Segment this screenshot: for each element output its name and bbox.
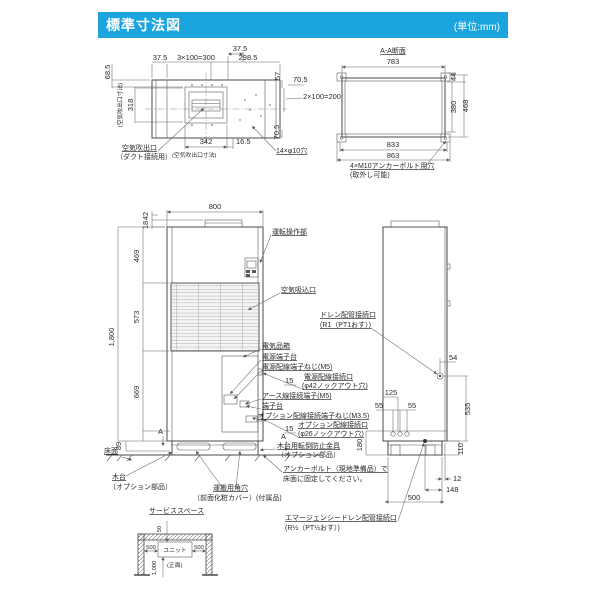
label-carry-holes-2: （前面化粧カバー）(付属品) [193,493,282,502]
dim-125: 125 [385,388,398,397]
dim-37-5-top: 37.5 [233,44,248,53]
dim-18: 18 [141,221,150,229]
dim-54: 54 [449,353,457,362]
dim-573: 573 [132,311,141,324]
label-earth-terminal: アース線接続端子(M5) [262,391,332,400]
dim-55-b: 55 [408,401,416,410]
dim-863: 863 [387,151,400,160]
dim-15-a: 15 [285,376,293,385]
label-floor: 床面 [104,446,118,455]
label-14-holes: 14×φ10穴 [276,146,307,155]
dim-70-5-b: 70.5 [272,125,281,140]
label-anchor-bolt-2: 床面に固定してください。 [283,474,367,483]
dim-55-a: 55 [375,401,383,410]
label-electrical-box: 電気品箱 [262,341,290,350]
dim-833: 833 [387,140,400,149]
label-wood-base: 木台 [112,472,126,481]
label-tip-bracket-2: （オプション部品） [277,450,340,459]
service-space-title: サービススペース [149,506,204,515]
label-emergency-drain-2: (R½（PT½おす）) [285,524,340,532]
label-front-face: (正面) [167,562,183,569]
dim-68-5: 68.5 [103,65,112,80]
dim-800: 800 [209,202,222,211]
label-unit: ユニット [163,547,186,554]
label-power-terminal: 電源端子台 [262,352,297,361]
section-view: A-A断面 783 44 380 468 833 863 4×M10アンカーボル… [337,46,470,179]
dim-669: 669 [132,386,141,399]
label-terminal-block: 端子台 [262,401,283,410]
dim-12: 12 [453,474,461,483]
dim-42: 42 [141,212,150,220]
label-outlet-dim-side: (空気吹出口寸法) [116,83,124,128]
label-power-port-2: (φ42ノックアウト穴) [302,381,368,390]
label-anchor-holes-2: (取外し可能) [350,170,390,179]
emergency-drain-port [423,439,427,443]
dim-535: 535 [463,403,472,416]
label-drain-2: (R1（PT1おす）) [320,321,371,329]
label-drain: ドレン配管接続口 [320,310,376,319]
label-option-port-2: (φ26ノックアウト穴) [298,429,364,438]
dim-298-5: 298.5 [239,53,258,62]
dim-500-right: 500 [194,545,204,551]
dimension-drawing-page: 標準寸法図 (単位:mm) [0,0,600,600]
label-power-port: 電源配線接続口 [304,372,353,381]
label-option-port: オプション配線接続口 [298,420,368,429]
dim-318: 318 [126,99,135,112]
section-title: A-A断面 [380,46,406,55]
dim-2x100: 2×100=200 [303,92,341,101]
dim-148: 148 [446,485,459,494]
label-outlet-dim-bottom: (空気吹出口寸法) [172,151,217,159]
air-intake-grille [171,283,259,351]
dim-180: 180 [355,439,364,452]
dim-1800: 1,800 [107,328,116,347]
dim-37-5: 37.5 [153,53,168,62]
dim-50: 50 [157,526,163,532]
dim-1000: 1,000 [152,561,158,576]
dim-16-5: 16.5 [236,137,251,146]
anchor-brackets [337,73,450,142]
dim-110: 110 [456,443,465,455]
dim-500-left: 500 [146,545,156,551]
label-wood-base-2: （オプション部品） [109,482,172,491]
top-view: 37.5 37.5 3×100=300 298.5 68.5 (空気吹出口寸法)… [103,44,341,161]
dim-342: 342 [200,137,213,146]
dim-44: 44 [449,73,458,81]
label-carry-holes: 運搬用角穴 [213,483,248,492]
dim-70-5-a: 70.5 [293,75,308,84]
section-mark-a-right: A [281,432,286,441]
label-emergency-drain: エマージェンシードレン配管接続口 [285,513,397,522]
section-mark-a-left: A [158,427,163,436]
dim-57: 57 [273,72,282,80]
label-air-outlet-duct: （ダクト接続用） [116,152,172,161]
dim-380: 380 [449,101,458,114]
label-option-screw: オプション配線接続端子ねじ(M3.5) [258,411,369,420]
dim-3x100: 3×100=300 [177,53,215,62]
dim-500: 500 [408,493,421,502]
dim-15-b: 15 [285,424,293,433]
dim-469: 469 [132,250,141,263]
service-space-view: サービススペース 50 500 500 ユニット (正面) 1,000 [134,506,218,577]
label-anchor-holes: 4×M10アンカーボルト用穴 [350,161,434,170]
drawing-canvas: 37.5 37.5 3×100=300 298.5 68.5 (空気吹出口寸法)… [0,0,600,600]
bolt-holes [191,84,270,126]
label-air-outlet: 空気吹出口 [122,143,157,152]
control-panel [245,258,258,277]
label-anchor-bolt: アンカーボルト（現地準備品）で [283,464,388,473]
side-base [388,441,442,455]
wooden-base [172,441,258,455]
label-tip-bracket: 木台用転倒防止金具 [277,441,340,450]
electrical-box [222,356,258,432]
dim-468: 468 [461,100,470,113]
dim-783: 783 [387,57,400,66]
label-air-intake: 空気吸込口 [281,285,316,294]
label-power-screw: 電源配線端子ねじ(M5) [262,362,332,371]
label-control-panel: 運転操作部 [272,227,307,236]
